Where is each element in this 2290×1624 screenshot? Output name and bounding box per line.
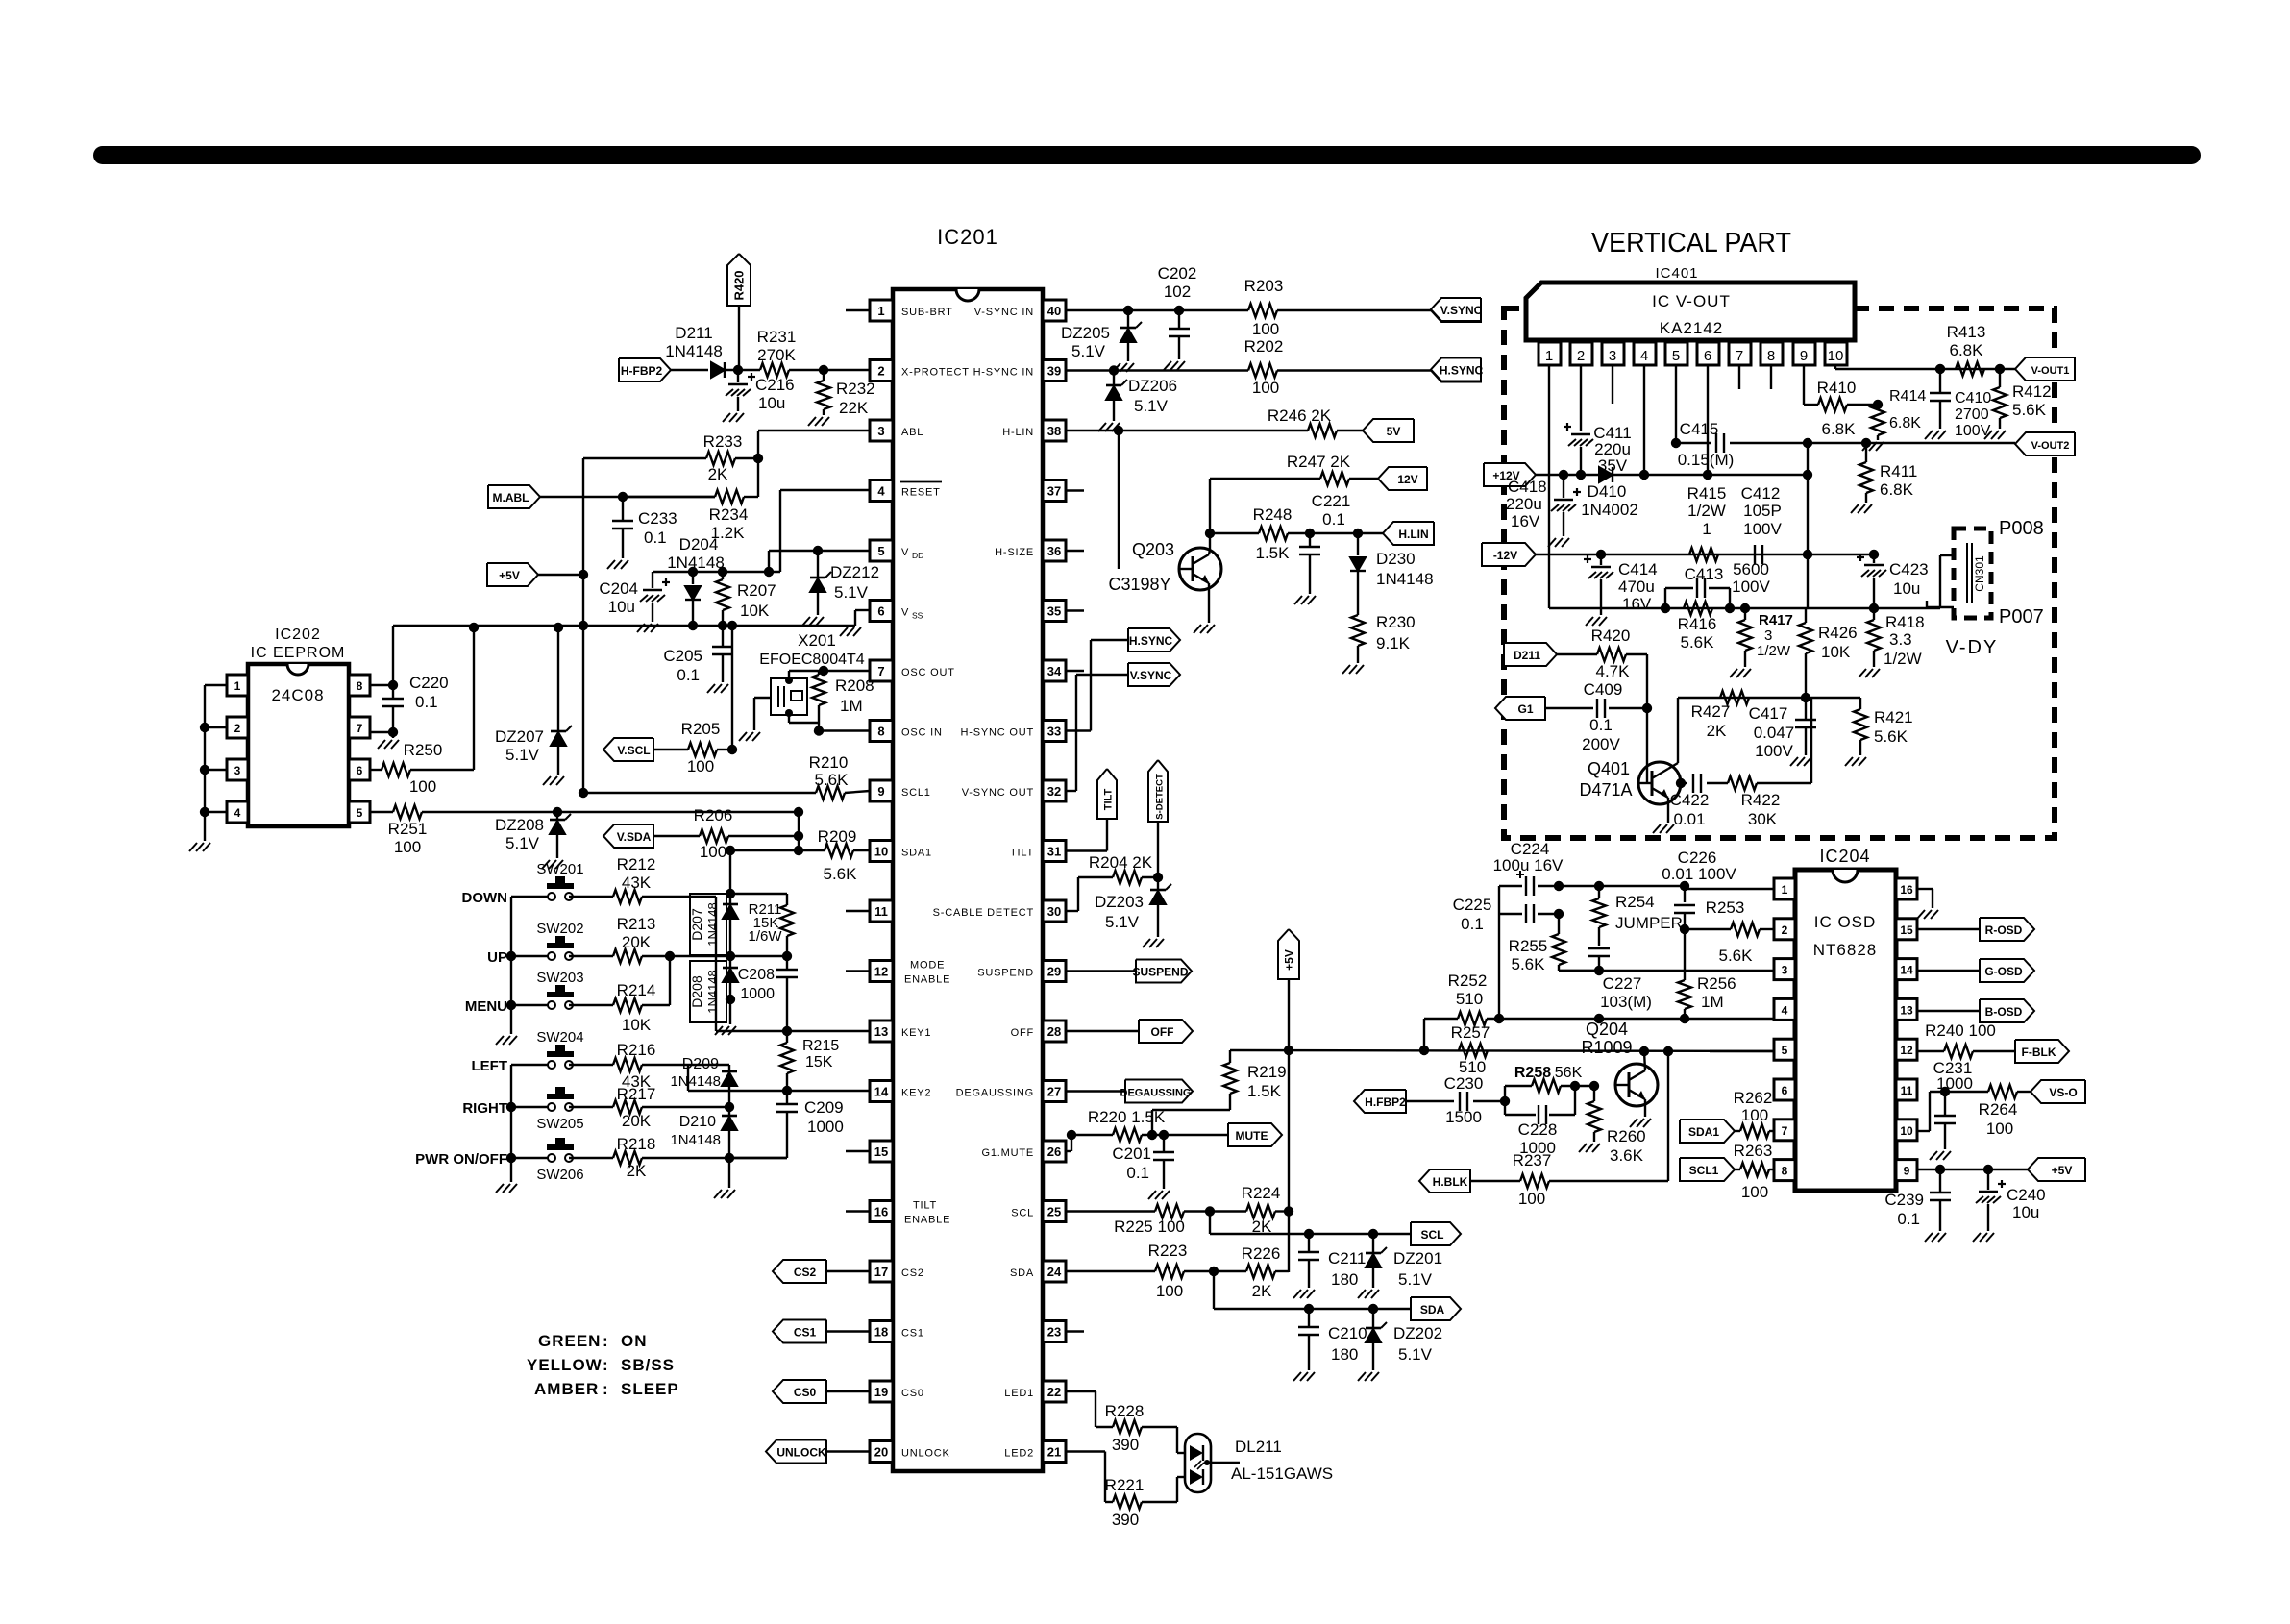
svg-text:R256: R256 <box>1697 974 1736 993</box>
svg-text:6: 6 <box>357 764 363 777</box>
svg-text:13: 13 <box>874 1024 888 1039</box>
svg-text:YELLOW: YELLOW <box>527 1356 603 1374</box>
svg-text:CS1: CS1 <box>794 1326 817 1340</box>
svg-text:LED1: LED1 <box>1004 1388 1034 1399</box>
svg-text:1: 1 <box>1702 520 1711 538</box>
svg-text:3: 3 <box>1782 964 1788 977</box>
svg-text:0.01 100V: 0.01 100V <box>1662 865 1736 883</box>
svg-text:1N4148: 1N4148 <box>670 1073 721 1090</box>
svg-text:P008: P008 <box>1999 518 2044 539</box>
svg-text:NT6828: NT6828 <box>1813 941 1877 959</box>
svg-text:20: 20 <box>874 1445 888 1460</box>
svg-text:10u: 10u <box>608 598 635 616</box>
svg-text:8: 8 <box>877 725 884 739</box>
svg-text:220u: 220u <box>1506 495 1542 513</box>
svg-text:AMBER: AMBER <box>534 1380 599 1398</box>
svg-text:5.1V: 5.1V <box>1398 1270 1433 1289</box>
svg-text:D204: D204 <box>679 535 719 554</box>
svg-text:6.8K: 6.8K <box>1889 415 1921 431</box>
svg-text:TILT: TILT <box>913 1200 937 1212</box>
svg-text:0.1: 0.1 <box>415 693 438 711</box>
svg-text:SB/SS: SB/SS <box>621 1356 675 1374</box>
svg-text:AL-151GAWS: AL-151GAWS <box>1231 1464 1333 1483</box>
svg-text:R202: R202 <box>1244 337 1284 356</box>
svg-text:8: 8 <box>1782 1165 1788 1178</box>
svg-text:C240: C240 <box>2007 1186 2046 1204</box>
svg-text:Q401: Q401 <box>1588 759 1630 778</box>
svg-text:180: 180 <box>1331 1270 1358 1289</box>
svg-text:CS2: CS2 <box>794 1266 817 1279</box>
svg-text:D471A: D471A <box>1579 780 1632 800</box>
svg-text:4: 4 <box>1640 348 1648 364</box>
svg-text:R413: R413 <box>1947 323 1986 341</box>
svg-text::: : <box>603 1356 608 1374</box>
svg-text:1000: 1000 <box>1936 1074 1973 1093</box>
svg-text:270K: 270K <box>757 346 796 364</box>
svg-text:R226: R226 <box>1242 1244 1281 1263</box>
svg-text:1N4148: 1N4148 <box>705 970 720 1014</box>
svg-text:DZ208: DZ208 <box>495 816 544 834</box>
svg-text:R251: R251 <box>388 820 428 838</box>
svg-text:2K: 2K <box>1252 1282 1272 1300</box>
svg-text:-12V: -12V <box>1493 549 1517 562</box>
svg-text:V-DY: V-DY <box>1946 637 1999 658</box>
svg-text:IC V-OUT: IC V-OUT <box>1652 292 1731 310</box>
svg-text:36: 36 <box>1047 544 1061 558</box>
svg-text:H.FBP2: H.FBP2 <box>1365 1095 1406 1109</box>
svg-text:H-SYNC OUT: H-SYNC OUT <box>961 727 1034 739</box>
svg-text:1N4148: 1N4148 <box>670 1132 721 1148</box>
svg-text:1: 1 <box>1545 348 1553 364</box>
svg-text:R427: R427 <box>1691 702 1731 721</box>
svg-text:Q204: Q204 <box>1586 1020 1628 1039</box>
svg-text:G1: G1 <box>1517 702 1533 716</box>
svg-text:16: 16 <box>1900 883 1913 897</box>
svg-text:34: 34 <box>1047 664 1062 678</box>
svg-text:D410: D410 <box>1588 482 1627 501</box>
svg-text:D207: D207 <box>689 908 704 941</box>
svg-text:DOWN: DOWN <box>462 890 508 906</box>
svg-text:32: 32 <box>1047 784 1061 799</box>
svg-text:20K: 20K <box>622 1112 652 1130</box>
svg-text:9.1K: 9.1K <box>1376 634 1411 652</box>
svg-text:+5V: +5V <box>1283 949 1296 971</box>
svg-text:C415: C415 <box>1680 420 1719 438</box>
svg-text:11: 11 <box>1901 1084 1913 1097</box>
svg-text:39: 39 <box>1047 364 1061 379</box>
svg-text:R258: R258 <box>1514 1065 1551 1081</box>
svg-text:103(M): 103(M) <box>1600 993 1652 1011</box>
svg-text:200V: 200V <box>1582 735 1620 753</box>
svg-text:H.SYNC: H.SYNC <box>1129 634 1173 648</box>
svg-text:10: 10 <box>874 845 888 859</box>
svg-text:27: 27 <box>1047 1085 1061 1099</box>
svg-text:28: 28 <box>1047 1024 1061 1039</box>
svg-text:R204 2K: R204 2K <box>1089 853 1153 872</box>
svg-text:DZ207: DZ207 <box>495 727 544 746</box>
svg-text:SUB-BRT: SUB-BRT <box>901 307 953 318</box>
svg-text:R260: R260 <box>1607 1127 1646 1145</box>
svg-text:DD: DD <box>912 551 923 560</box>
svg-text:5.1V: 5.1V <box>505 834 540 852</box>
svg-text:CS2: CS2 <box>901 1267 924 1279</box>
svg-text:KEY2: KEY2 <box>901 1088 931 1099</box>
svg-text:100: 100 <box>700 843 726 861</box>
svg-text:18: 18 <box>874 1325 888 1340</box>
svg-text:R207: R207 <box>737 581 776 600</box>
svg-text:SDA1: SDA1 <box>1688 1125 1719 1139</box>
svg-text:RESET: RESET <box>901 487 941 499</box>
svg-text:SUSPEND: SUSPEND <box>1132 966 1188 979</box>
svg-text:R216: R216 <box>617 1041 656 1059</box>
svg-text:V-OUT2: V-OUT2 <box>2031 440 2070 452</box>
svg-text:SW202: SW202 <box>536 921 583 937</box>
svg-text:C205: C205 <box>663 647 702 665</box>
svg-text:5.1V: 5.1V <box>1105 913 1140 931</box>
svg-text:D209: D209 <box>682 1056 719 1072</box>
svg-text:MODE: MODE <box>910 960 945 972</box>
svg-text:SLEEP: SLEEP <box>621 1380 679 1398</box>
svg-text:C227: C227 <box>1603 974 1642 993</box>
svg-text:C413: C413 <box>1685 565 1724 583</box>
svg-text:1.5K: 1.5K <box>1247 1082 1282 1100</box>
svg-text:R421: R421 <box>1874 708 1913 726</box>
svg-text:H-FBP2: H-FBP2 <box>621 364 663 378</box>
svg-text:56K: 56K <box>1555 1065 1583 1081</box>
svg-text:IC202: IC202 <box>275 627 321 643</box>
svg-text:1.5K: 1.5K <box>1256 544 1291 562</box>
svg-text:OFF: OFF <box>1151 1025 1174 1039</box>
svg-text:RIGHT: RIGHT <box>462 1100 507 1117</box>
svg-text:1: 1 <box>234 679 241 693</box>
svg-text:24: 24 <box>1047 1265 1062 1279</box>
svg-text:100V: 100V <box>1732 578 1770 596</box>
svg-text:100: 100 <box>1986 1120 2013 1138</box>
svg-text:R418: R418 <box>1885 613 1925 631</box>
svg-text:1N4148: 1N4148 <box>667 554 725 572</box>
svg-text:470u: 470u <box>1618 578 1655 596</box>
svg-text:100: 100 <box>1156 1282 1183 1300</box>
svg-text:Q203: Q203 <box>1132 540 1174 559</box>
svg-text:CS0: CS0 <box>794 1386 817 1399</box>
svg-text:V.SYNC: V.SYNC <box>1440 304 1483 317</box>
svg-text:F-BLK: F-BLK <box>2022 1046 2056 1059</box>
svg-text:R208: R208 <box>835 677 874 695</box>
svg-text:100: 100 <box>394 838 421 856</box>
svg-text:R420: R420 <box>1591 627 1631 645</box>
svg-text:PWR ON/OFF: PWR ON/OFF <box>415 1151 507 1168</box>
svg-text:R263: R263 <box>1734 1142 1773 1160</box>
svg-text:3: 3 <box>1764 627 1772 644</box>
svg-text:22: 22 <box>1047 1385 1061 1399</box>
svg-text:C221: C221 <box>1312 492 1351 510</box>
svg-text:+5V: +5V <box>2052 1164 2073 1177</box>
svg-text:1M: 1M <box>1701 993 1724 1011</box>
svg-text:R223: R223 <box>1148 1242 1188 1260</box>
svg-text:D208: D208 <box>689 975 704 1008</box>
svg-text:2K: 2K <box>1707 722 1727 740</box>
svg-text:12: 12 <box>874 965 888 979</box>
svg-text:MUTE: MUTE <box>1236 1129 1268 1143</box>
svg-text:510: 510 <box>1456 990 1483 1008</box>
svg-text:10: 10 <box>1900 1124 1913 1138</box>
svg-text:0.1: 0.1 <box>1589 716 1613 734</box>
svg-text:5.6K: 5.6K <box>1719 947 1754 965</box>
svg-text:R205: R205 <box>681 720 721 738</box>
svg-text:6.8K: 6.8K <box>1822 420 1857 438</box>
svg-text:R415: R415 <box>1687 484 1727 503</box>
svg-text:5.6K: 5.6K <box>1874 727 1908 746</box>
svg-text:C202: C202 <box>1158 264 1197 283</box>
svg-text:100: 100 <box>1252 320 1279 338</box>
svg-text:SW206: SW206 <box>536 1167 583 1183</box>
svg-text:3: 3 <box>1609 348 1616 364</box>
svg-text:R240 100: R240 100 <box>1925 1021 1996 1040</box>
svg-text:100u 16V: 100u 16V <box>1493 856 1564 874</box>
svg-text:5.6K: 5.6K <box>815 771 850 789</box>
svg-text:7: 7 <box>877 664 884 678</box>
svg-text:15K: 15K <box>805 1054 833 1070</box>
svg-text:10u: 10u <box>758 394 785 412</box>
svg-text:D210: D210 <box>679 1114 716 1130</box>
svg-text:1M: 1M <box>840 697 863 715</box>
svg-text:C410: C410 <box>1955 390 1991 406</box>
svg-text:R219: R219 <box>1247 1063 1287 1081</box>
svg-text:C417: C417 <box>1749 704 1788 723</box>
svg-text:10K: 10K <box>622 1016 652 1034</box>
svg-text:7: 7 <box>1782 1124 1788 1138</box>
svg-text:C412: C412 <box>1741 484 1781 503</box>
svg-text:H-SIZE: H-SIZE <box>995 547 1034 558</box>
svg-text:LEFT: LEFT <box>472 1058 508 1074</box>
svg-text:6: 6 <box>877 604 884 619</box>
svg-text:22K: 22K <box>839 399 869 417</box>
svg-text:6: 6 <box>1704 348 1711 364</box>
svg-text:LED2: LED2 <box>1004 1448 1034 1460</box>
svg-text:R412: R412 <box>2012 382 2052 401</box>
svg-text:31: 31 <box>1047 845 1061 859</box>
svg-text:P007: P007 <box>1999 606 2044 627</box>
svg-text:C3198Y: C3198Y <box>1108 575 1170 594</box>
svg-text:6: 6 <box>1782 1084 1788 1097</box>
svg-text:H.SYNC: H.SYNC <box>1440 364 1484 378</box>
svg-text:R253: R253 <box>1706 898 1745 917</box>
svg-text:R237: R237 <box>1513 1151 1552 1169</box>
svg-text:25: 25 <box>1047 1205 1061 1219</box>
svg-text:0.1: 0.1 <box>1322 510 1345 529</box>
svg-text:R210: R210 <box>809 753 849 772</box>
svg-text:19: 19 <box>874 1385 888 1399</box>
svg-text:SW201: SW201 <box>536 861 583 877</box>
svg-text:30K: 30K <box>1748 810 1778 828</box>
svg-text:H-LIN: H-LIN <box>1002 427 1034 438</box>
svg-text:ABL: ABL <box>901 427 923 438</box>
svg-text:V-OUT1: V-OUT1 <box>2031 365 2070 377</box>
svg-text:100: 100 <box>1741 1183 1768 1201</box>
svg-text:OFF: OFF <box>1011 1027 1034 1039</box>
svg-text:9: 9 <box>877 784 884 799</box>
svg-text:H.LIN: H.LIN <box>1398 528 1428 541</box>
svg-text:R206: R206 <box>694 806 733 824</box>
svg-text:SW203: SW203 <box>536 970 583 986</box>
svg-text:IC204: IC204 <box>1819 847 1870 866</box>
svg-text:S-CABLE DETECT: S-CABLE DETECT <box>933 907 1034 919</box>
svg-text:C225: C225 <box>1453 896 1492 914</box>
svg-text:100: 100 <box>409 777 436 796</box>
svg-text:5.6K: 5.6K <box>1512 955 1546 973</box>
svg-text:5: 5 <box>877 544 884 558</box>
svg-text:SDA1: SDA1 <box>901 848 932 859</box>
svg-text:4: 4 <box>1782 1003 1788 1017</box>
svg-text:TILT: TILT <box>1103 789 1115 811</box>
svg-text:R230: R230 <box>1376 613 1416 631</box>
svg-text:R417: R417 <box>1759 612 1793 628</box>
svg-text:R209: R209 <box>818 827 857 846</box>
svg-text:5.6K: 5.6K <box>2012 401 2047 419</box>
svg-text:G1.MUTE: G1.MUTE <box>982 1147 1035 1159</box>
svg-text:R420: R420 <box>732 270 747 300</box>
svg-text:8: 8 <box>357 679 363 693</box>
svg-text:X201: X201 <box>798 631 836 650</box>
svg-text:V: V <box>901 607 909 619</box>
svg-text:R-OSD: R-OSD <box>1985 923 2023 937</box>
svg-text:13: 13 <box>1900 1003 1913 1017</box>
svg-text:VERTICAL PART: VERTICAL PART <box>1591 228 1791 258</box>
svg-text:0.047: 0.047 <box>1754 724 1795 742</box>
svg-text:C208: C208 <box>738 967 775 983</box>
svg-text:IC401: IC401 <box>1655 265 1698 282</box>
svg-text:C209: C209 <box>804 1098 844 1117</box>
svg-text:0.1: 0.1 <box>1461 915 1484 933</box>
svg-text:R416: R416 <box>1678 615 1717 633</box>
svg-text:1N4148: 1N4148 <box>1376 570 1434 588</box>
svg-text:14: 14 <box>874 1085 889 1099</box>
svg-text:DEGAUSSING: DEGAUSSING <box>1120 1088 1192 1099</box>
svg-text:V.SYNC: V.SYNC <box>1130 669 1172 682</box>
svg-text:+5V: +5V <box>499 569 520 582</box>
svg-text:9: 9 <box>1904 1165 1910 1178</box>
svg-text:C204: C204 <box>599 579 638 598</box>
svg-text:SDA: SDA <box>1420 1303 1445 1316</box>
svg-text:SW204: SW204 <box>536 1029 583 1046</box>
svg-text:R411: R411 <box>1880 462 1917 480</box>
svg-text:4.7K: 4.7K <box>1596 662 1631 680</box>
svg-text:0.1: 0.1 <box>644 529 667 547</box>
svg-text:R232: R232 <box>836 380 875 398</box>
svg-text:UNLOCK: UNLOCK <box>776 1446 826 1460</box>
svg-text:B-OSD: B-OSD <box>1985 1005 2023 1019</box>
svg-text:1000: 1000 <box>740 986 775 1002</box>
svg-text:MENU: MENU <box>465 998 507 1015</box>
svg-text:JUMPER: JUMPER <box>1615 914 1683 932</box>
svg-text:16V: 16V <box>1622 595 1652 613</box>
svg-text:R246 2K: R246 2K <box>1268 406 1332 425</box>
svg-text:IC OSD: IC OSD <box>1814 913 1877 931</box>
svg-text:100V: 100V <box>1743 520 1782 538</box>
svg-text:SCL1: SCL1 <box>901 787 931 799</box>
svg-text:390: 390 <box>1112 1511 1139 1529</box>
svg-text:SCL: SCL <box>1421 1228 1444 1242</box>
svg-text:14: 14 <box>1900 964 1913 977</box>
svg-text:D211: D211 <box>1514 649 1540 662</box>
svg-text:2: 2 <box>877 364 884 379</box>
svg-text:1: 1 <box>877 304 884 318</box>
svg-text:R422: R422 <box>1741 791 1781 809</box>
svg-text::: : <box>603 1332 608 1350</box>
svg-text:9: 9 <box>1800 348 1808 364</box>
svg-text:V: V <box>901 547 909 558</box>
svg-text:24C08: 24C08 <box>271 686 324 704</box>
svg-text:0.01: 0.01 <box>1673 810 1705 828</box>
svg-text:TILT: TILT <box>1010 848 1034 859</box>
svg-text:KEY1: KEY1 <box>901 1027 931 1039</box>
svg-text:10K: 10K <box>740 602 770 620</box>
svg-text:R203: R203 <box>1244 277 1284 295</box>
svg-text:5600: 5600 <box>1733 560 1769 578</box>
svg-text:0.1: 0.1 <box>677 666 700 684</box>
svg-text:0.15(M): 0.15(M) <box>1678 451 1735 469</box>
svg-text:H.BLK: H.BLK <box>1433 1175 1468 1189</box>
svg-text:R225 100: R225 100 <box>1114 1218 1185 1236</box>
svg-text:KA2142: KA2142 <box>1660 319 1724 337</box>
svg-text:R221: R221 <box>1105 1476 1145 1494</box>
svg-text:100: 100 <box>1518 1190 1545 1208</box>
svg-text:V-SYNC IN: V-SYNC IN <box>974 307 1034 318</box>
svg-text:3.3: 3.3 <box>1889 630 1912 649</box>
svg-text:R426: R426 <box>1818 624 1858 642</box>
svg-text:5: 5 <box>1782 1044 1788 1057</box>
svg-text:10u: 10u <box>2012 1203 2039 1221</box>
svg-text:R264: R264 <box>1979 1100 2018 1119</box>
svg-text:R255: R255 <box>1509 937 1548 955</box>
svg-text:29: 29 <box>1047 965 1061 979</box>
svg-text:102: 102 <box>1164 283 1191 301</box>
svg-text:OSC IN: OSC IN <box>901 727 943 739</box>
svg-text:SS: SS <box>912 611 923 621</box>
svg-text:5: 5 <box>1672 348 1680 364</box>
svg-text:100V: 100V <box>1755 742 1793 760</box>
svg-text:C201: C201 <box>1112 1144 1151 1163</box>
svg-text:CN301: CN301 <box>1973 555 1986 592</box>
svg-text:R212: R212 <box>617 855 656 874</box>
svg-text:3: 3 <box>234 764 241 777</box>
svg-text:R233: R233 <box>703 432 743 451</box>
svg-text:1500: 1500 <box>1445 1108 1482 1126</box>
svg-text:7: 7 <box>1736 348 1743 364</box>
svg-text:D230: D230 <box>1376 550 1416 568</box>
svg-text:100: 100 <box>687 757 714 775</box>
svg-text:1N4002: 1N4002 <box>1581 501 1638 519</box>
svg-text:R213: R213 <box>617 915 656 933</box>
svg-text:1/6W: 1/6W <box>748 928 782 945</box>
svg-text:12V: 12V <box>1397 473 1417 486</box>
svg-text:R254: R254 <box>1615 893 1655 911</box>
svg-text:DZ201: DZ201 <box>1393 1249 1442 1267</box>
svg-text:6.8K: 6.8K <box>1880 480 1914 499</box>
svg-text:DZ206: DZ206 <box>1128 377 1177 395</box>
svg-text:3: 3 <box>877 424 884 438</box>
svg-text:R231: R231 <box>757 328 797 346</box>
svg-text:4: 4 <box>877 484 885 499</box>
svg-text:OSC OUT: OSC OUT <box>901 667 955 678</box>
svg-text:R414: R414 <box>1889 388 1926 405</box>
svg-text:DEGAUSSING: DEGAUSSING <box>956 1088 1034 1099</box>
svg-text:5: 5 <box>357 806 363 820</box>
svg-text:GREEN: GREEN <box>538 1332 601 1350</box>
svg-text:100: 100 <box>1252 379 1279 397</box>
svg-text:R1009: R1009 <box>1581 1038 1632 1057</box>
svg-text:2: 2 <box>1577 348 1585 364</box>
